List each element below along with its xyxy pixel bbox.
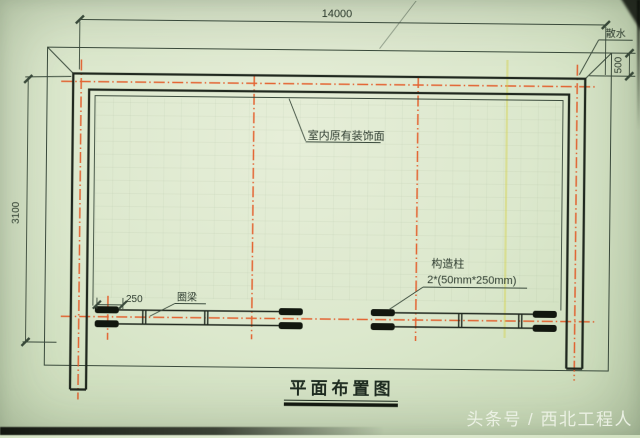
label-ring-beam-text: 圈梁	[177, 291, 197, 304]
label-constructional-column: 构造柱 2*(50mm*250mm)	[389, 256, 528, 311]
plan-svg: 14000 3100 500	[0, 0, 640, 438]
plan-drawing: 14000 3100 500	[0, 0, 640, 438]
watermark-text: 头条号 / 西北工程人	[466, 405, 633, 430]
photo-bottom-edge-shadow	[0, 427, 480, 435]
drawing-title-text: 平面布置图	[289, 378, 394, 399]
label-column-title-text: 构造柱	[431, 256, 464, 270]
wall-outline	[70, 73, 585, 394]
axis-centerlines	[58, 59, 598, 405]
dimension-apron-width: 500	[589, 49, 635, 80]
label-ring-beam: 圈梁	[150, 290, 206, 317]
label-interior-finish: 室内原有装饰面	[289, 99, 385, 143]
drawing-title: 平面布置图	[284, 378, 398, 406]
label-column-spec-text: 2*(50mm*250mm)	[427, 274, 516, 287]
dimension-overall-width: 14000	[75, 5, 610, 75]
dim-apron-width-value: 500	[613, 56, 624, 73]
highlight-line	[505, 60, 508, 338]
dim-column-length-value: 250	[126, 294, 143, 305]
paper-crease-line	[380, 0, 420, 49]
photo-of-plan-drawing: { "drawing": { "title": "平面布置图", "dim_ov…	[0, 0, 640, 435]
photo-area: 14000 3100 500	[0, 0, 640, 435]
dim-left-height-value: 3100	[11, 201, 22, 224]
dim-overall-width-value: 14000	[322, 8, 353, 20]
label-interior-finish-text: 室内原有装饰面	[308, 128, 385, 143]
dimension-left-height: 3100	[9, 75, 71, 347]
